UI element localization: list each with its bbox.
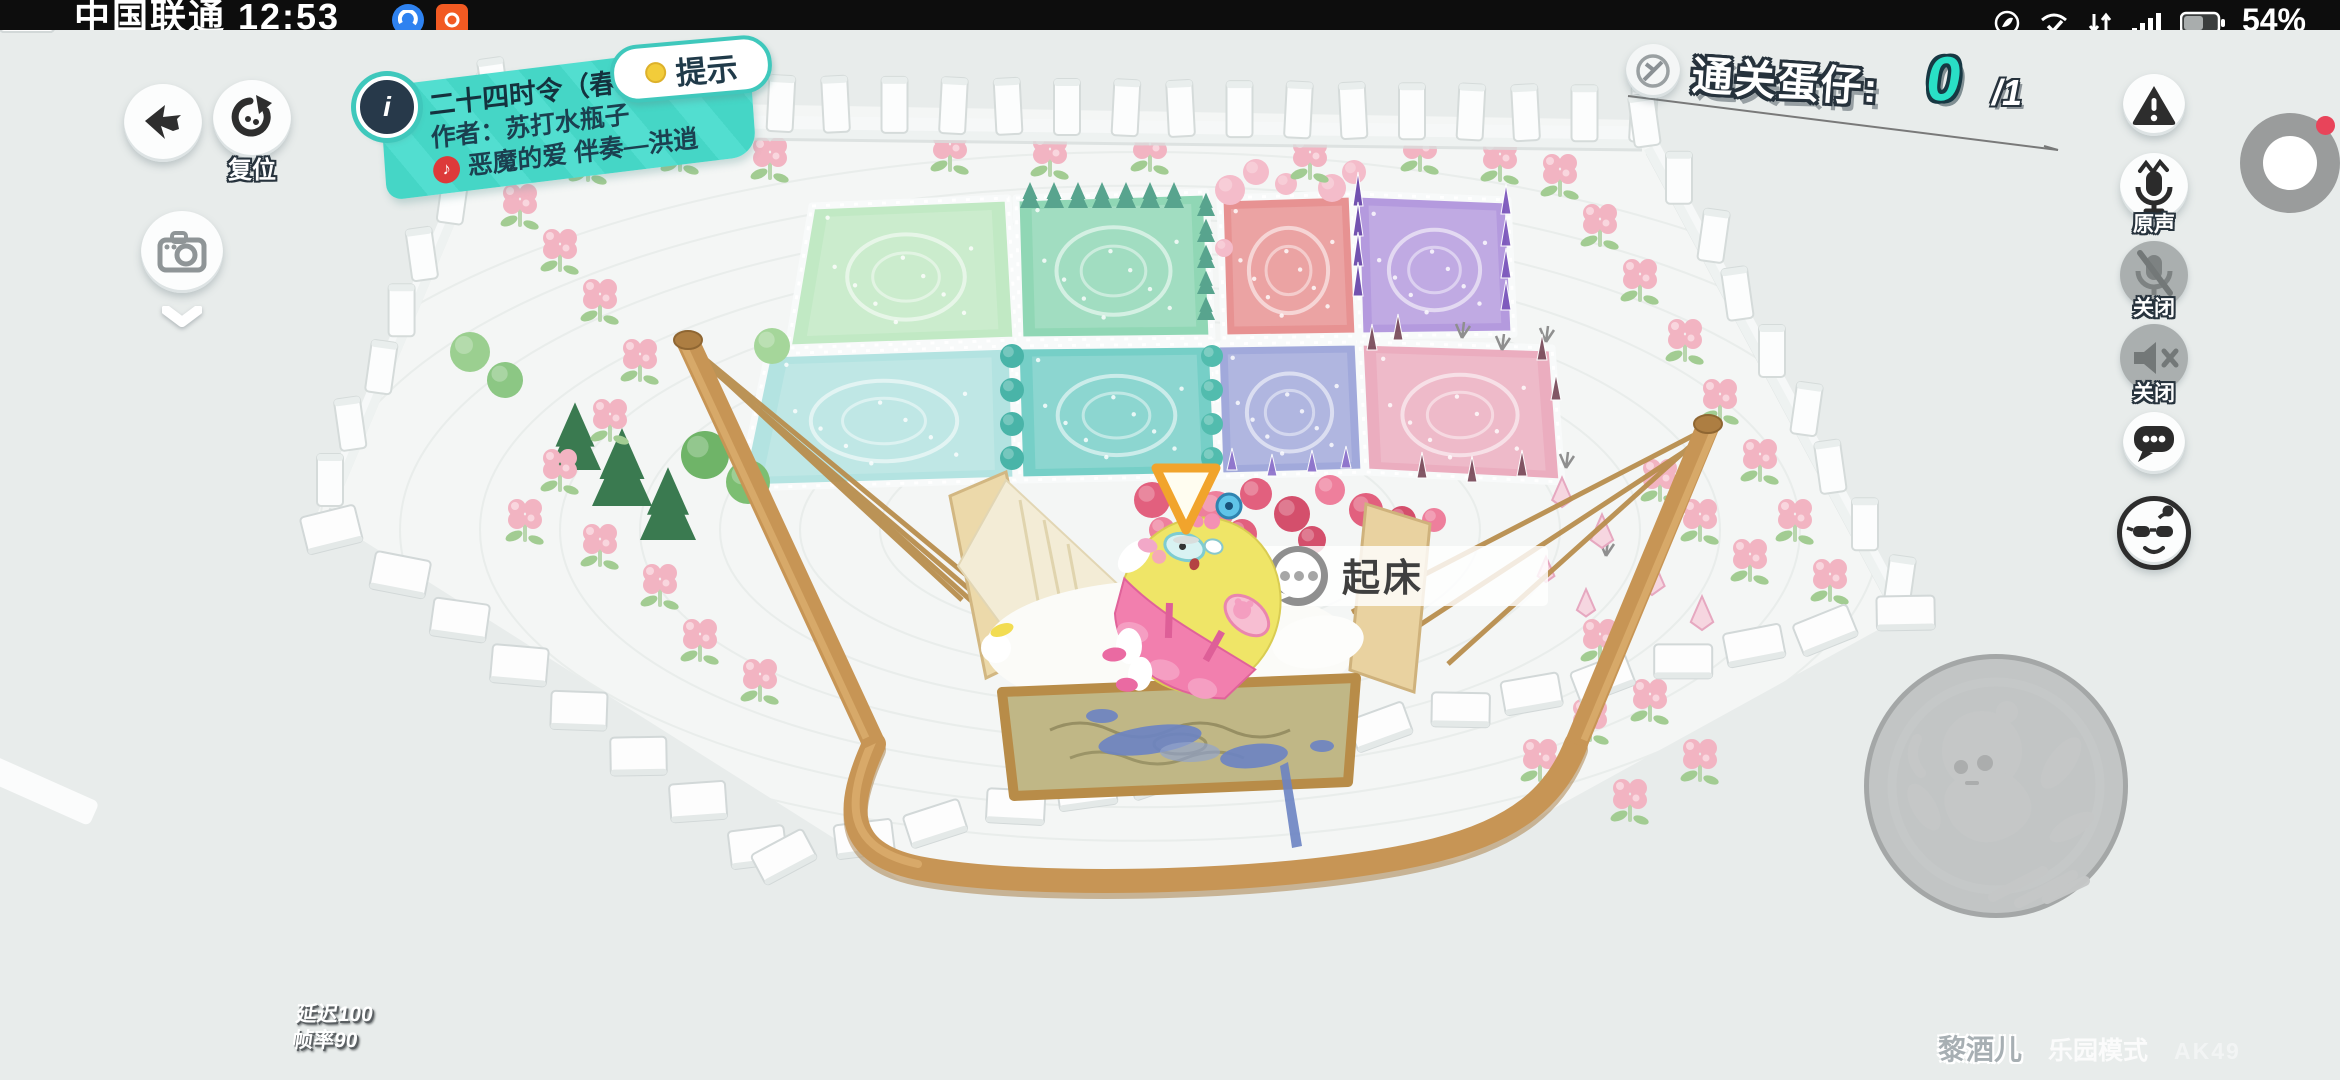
voice-mode-label: 原声: [2104, 208, 2204, 238]
hint-dot-icon: [644, 61, 667, 84]
chat-button[interactable]: [2123, 412, 2185, 474]
data-arrows-icon: [2086, 10, 2114, 31]
speaker-toggle-label: 关闭: [2104, 377, 2204, 407]
action-egg-icon: [1869, 659, 2123, 913]
back-button[interactable]: [124, 84, 202, 162]
chat-bubble-icon: [2129, 420, 2179, 466]
warning-icon: [2129, 82, 2179, 128]
emote-button[interactable]: [2117, 496, 2191, 570]
reset-button[interactable]: [213, 80, 291, 158]
game-scene[interactable]: 起床: [0, 0, 2340, 1080]
info-icon[interactable]: i: [356, 76, 418, 138]
report-warning-button[interactable]: [2123, 74, 2185, 136]
chevron-down-icon: [162, 306, 202, 328]
wifi-check-icon: [2038, 10, 2070, 31]
notification-app-icon: [436, 4, 468, 30]
netease-music-icon: ♪: [432, 154, 461, 184]
camera-button[interactable]: [141, 211, 223, 293]
reset-icon: [226, 93, 278, 145]
debug-stats: 延迟100 帧率90: [290, 1002, 374, 1054]
objective-badge-icon: [1626, 44, 1680, 98]
wake-up-label: 起床: [1342, 558, 1424, 600]
objective-current-count: 0: [1925, 43, 1962, 115]
camera-icon: [156, 230, 208, 274]
action-button[interactable]: [1864, 654, 2128, 918]
reset-button-label: 复位: [206, 150, 298, 185]
voice-mic-icon: [2128, 159, 2180, 215]
objective-total-count: /1: [1992, 72, 2022, 114]
speaker-off-icon: [2126, 334, 2182, 382]
game-mode-label: 乐园模式: [2048, 1031, 2148, 1067]
battery-icon: [2180, 10, 2226, 31]
watermark-tag: AK49: [2174, 1038, 2241, 1065]
status-bar: 中国联通 12:53 5: [0, 0, 2340, 30]
record-indicator-dot: [2316, 116, 2335, 135]
hint-button-label: 提示: [674, 43, 740, 93]
browser-app-icon: [392, 4, 424, 30]
camera-panel-toggle[interactable]: [162, 306, 202, 333]
latency-label: 延迟100: [294, 1002, 375, 1028]
mic-toggle-label: 关闭: [2104, 292, 2204, 322]
carrier-time-label: 中国联通 12:53: [74, 0, 340, 30]
signal-bars-icon: [2130, 10, 2164, 31]
back-arrow-icon: [139, 99, 187, 147]
player-name-label: 黎酒儿: [1938, 1028, 2022, 1068]
collectible-icon: [1217, 494, 1241, 518]
wake-up-prompt[interactable]: 起床: [1254, 546, 1548, 606]
emote-face-icon: [2123, 502, 2185, 564]
eco-mode-icon: [1992, 8, 2022, 31]
framerate-label: 帧率90: [290, 1028, 371, 1054]
watermark: 黎酒儿 乐园模式 AK49: [1938, 1028, 2241, 1068]
battery-percent-label: 54%: [2242, 2, 2306, 30]
